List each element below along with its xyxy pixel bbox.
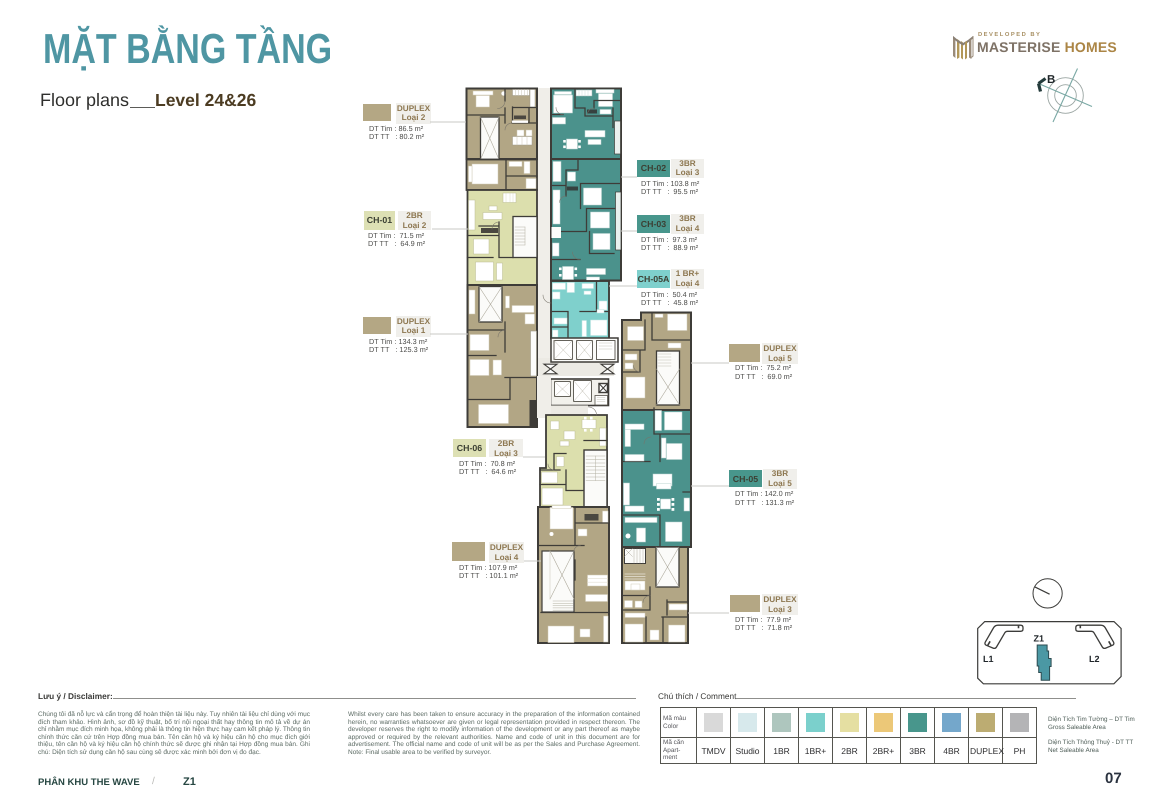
- svg-text:Z1: Z1: [1034, 634, 1045, 644]
- svg-text:L1: L1: [983, 654, 994, 664]
- svg-text:B: B: [1047, 74, 1055, 86]
- svg-text:L2: L2: [1089, 654, 1100, 664]
